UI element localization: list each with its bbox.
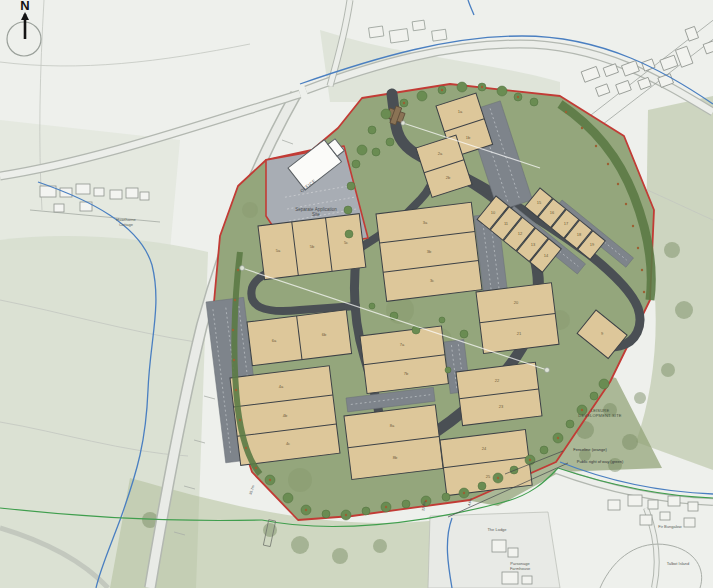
unit-label: 2a	[438, 152, 442, 156]
site-masterplan: N OFFICE Separate Application Site LEISU…	[0, 0, 713, 588]
building-7	[360, 326, 448, 394]
talbot-island-label: Talbot Island	[667, 562, 689, 567]
unit-label: 14	[544, 254, 548, 258]
unit-label: 5a	[276, 249, 280, 253]
legend-prow-label: Public right of way (green)	[577, 460, 623, 465]
legend-fenceline-label: Fenceline (orange)	[573, 448, 607, 453]
unit-label: 13	[531, 243, 535, 247]
unit-label: 4b	[283, 414, 287, 418]
parsonage-farmhouse-label: Parsonage Farmhouse	[503, 562, 537, 571]
unit-label: 5b	[310, 245, 314, 249]
unit-label: 2b	[446, 176, 450, 180]
unit-label: 16	[550, 211, 554, 215]
unit-label: 6b	[322, 333, 326, 337]
unit-label: 19	[590, 243, 594, 247]
fir-bungalow-label: Fir Bungalow	[658, 525, 681, 530]
leisure-development-site-label: LEISURE DEVELOPMENT SITE	[578, 409, 621, 418]
unit-label: 1b	[466, 136, 470, 140]
unit-label: 7a	[400, 343, 404, 347]
building-10	[476, 283, 559, 354]
north-arrow	[7, 12, 41, 56]
unit-label: 25	[486, 475, 490, 479]
unit-label: 3b	[427, 250, 431, 254]
unit-label: 3c	[430, 279, 434, 283]
unit-label: 18	[577, 233, 581, 237]
unit-label: 7b	[404, 372, 408, 376]
unit-label: 15	[537, 201, 541, 205]
unit-label: 5c	[344, 241, 348, 245]
unit-label: 8b	[393, 456, 397, 460]
unit-label: 17	[564, 222, 568, 226]
the-lodge-label: The Lodge	[487, 528, 506, 533]
unit-label: 9	[601, 332, 603, 336]
hawthorne-cottage-label: Hawthorne Cottage	[109, 218, 143, 227]
unit-label: 4c	[286, 442, 290, 446]
unit-label: 22	[495, 379, 499, 383]
unit-label: 12	[518, 232, 522, 236]
unit-label: 20	[514, 301, 518, 305]
building-11	[456, 362, 542, 425]
leisure-line2: DEVELOPMENT SITE	[578, 414, 621, 419]
north-label: N	[20, 0, 29, 13]
unit-label: 21	[517, 332, 521, 336]
unit-label: 1a	[458, 110, 462, 114]
masterplan-drawing	[0, 0, 713, 588]
unit-label: 3a	[423, 221, 427, 225]
unit-label: 10	[491, 211, 495, 215]
unit-label: 4a	[279, 385, 283, 389]
separate-application-site-label: Separate Application Site	[293, 207, 339, 217]
unit-label: 6a	[272, 339, 276, 343]
building-8	[344, 405, 443, 480]
unit-label: 11	[504, 222, 508, 226]
unit-label: 24	[482, 447, 486, 451]
unit-label: 8a	[390, 424, 394, 428]
unit-label: 23	[499, 405, 503, 409]
